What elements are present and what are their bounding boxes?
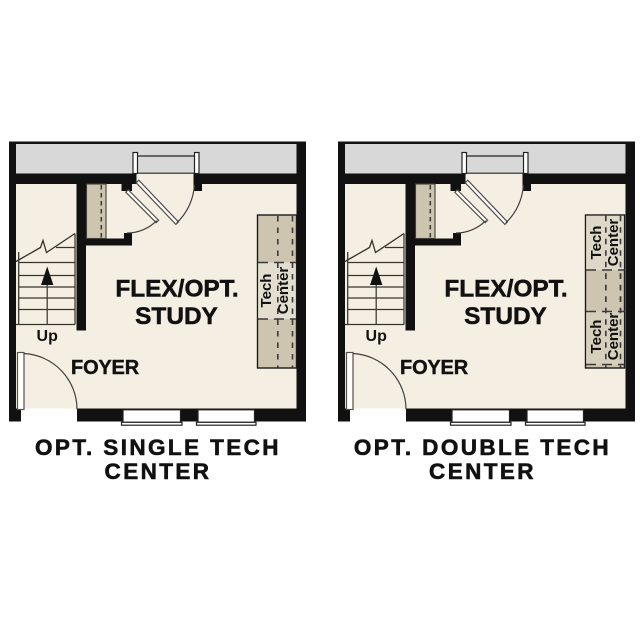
svg-text:Tech: Tech [588, 320, 605, 354]
svg-text:Center: Center [605, 219, 622, 267]
svg-text:OPT. DOUBLE TECH: OPT. DOUBLE TECH [354, 435, 611, 460]
svg-text:Tech: Tech [258, 274, 275, 308]
svg-text:Center: Center [605, 313, 622, 361]
svg-text:CENTER: CENTER [105, 459, 212, 484]
svg-text:Center: Center [275, 267, 292, 315]
svg-text:Tech: Tech [588, 226, 605, 260]
svg-text:CENTER: CENTER [429, 459, 536, 484]
svg-text:OPT. SINGLE TECH: OPT. SINGLE TECH [35, 435, 281, 460]
